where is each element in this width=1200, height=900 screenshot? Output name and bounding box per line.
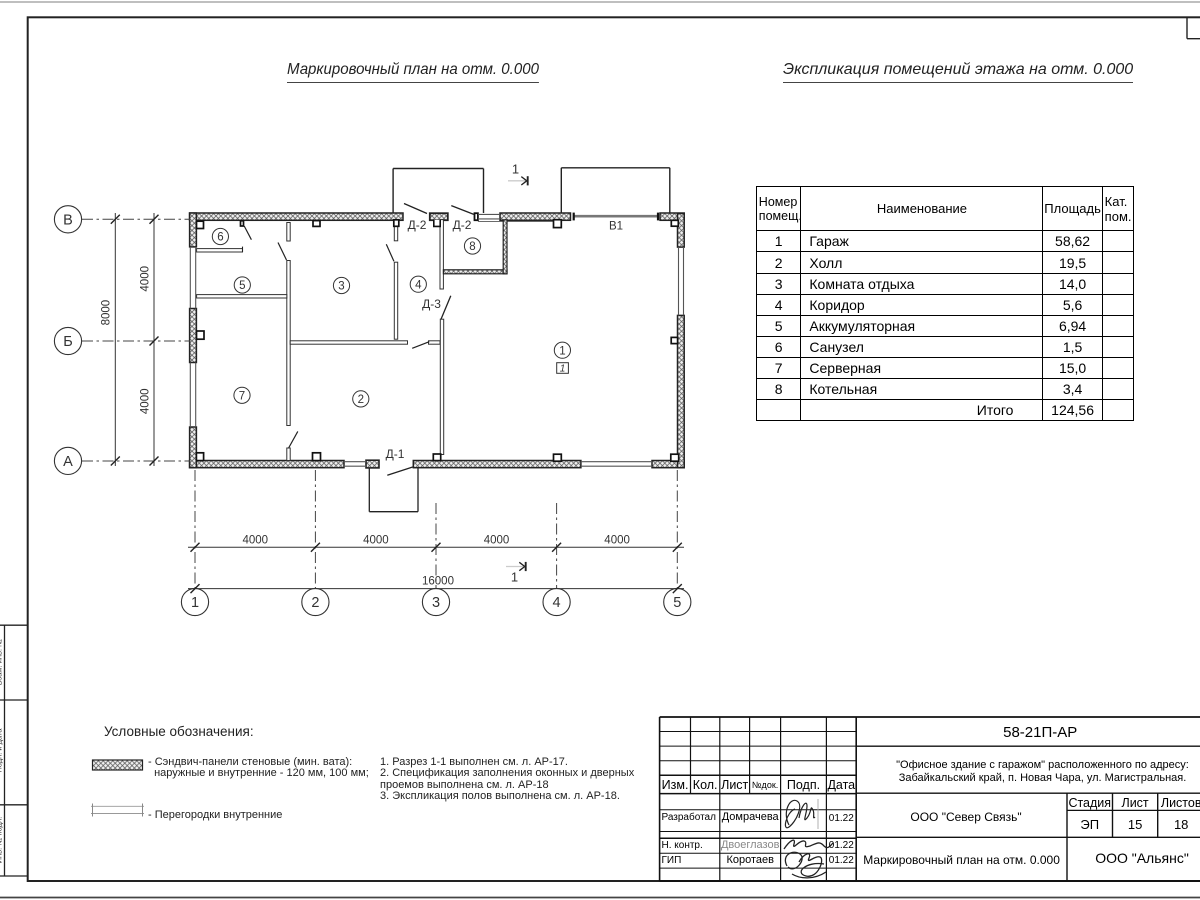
svg-text:2: 2 <box>358 394 364 406</box>
svg-text:В: В <box>63 212 73 228</box>
svg-text:1: 1 <box>511 570 518 585</box>
svg-text:8: 8 <box>469 241 475 253</box>
svg-text:3: 3 <box>338 281 344 293</box>
svg-text:1: 1 <box>191 595 199 611</box>
svg-text:Д-3: Д-3 <box>422 297 441 311</box>
svg-text:4: 4 <box>415 279 422 291</box>
svg-text:1: 1 <box>512 162 519 177</box>
svg-text:4000: 4000 <box>140 389 152 415</box>
svg-text:5: 5 <box>673 595 681 611</box>
svg-text:4000: 4000 <box>363 535 389 547</box>
svg-text:6: 6 <box>217 232 223 244</box>
svg-text:Д-1: Д-1 <box>386 447 405 461</box>
svg-text:4000: 4000 <box>604 535 630 547</box>
svg-text:А: А <box>63 454 73 470</box>
svg-text:8000: 8000 <box>101 300 113 326</box>
svg-text:16000: 16000 <box>422 576 454 588</box>
svg-text:1: 1 <box>560 363 566 374</box>
svg-text:4000: 4000 <box>243 535 269 547</box>
svg-text:3: 3 <box>432 595 440 611</box>
svg-text:4000: 4000 <box>140 266 152 292</box>
svg-text:Инв. № подл.: Инв. № подл. <box>0 817 4 864</box>
svg-text:2: 2 <box>311 595 319 611</box>
svg-text:Взам. инв. №: Взам. инв. № <box>0 639 4 685</box>
svg-text:7: 7 <box>239 391 245 403</box>
svg-text:Б: Б <box>63 334 73 350</box>
svg-text:4: 4 <box>553 595 561 611</box>
svg-text:Д-2: Д-2 <box>453 218 472 232</box>
svg-text:Д-2: Д-2 <box>408 218 427 232</box>
svg-text:Подп. и дата: Подп. и дата <box>0 728 4 773</box>
svg-text:5: 5 <box>239 280 245 292</box>
svg-text:4000: 4000 <box>484 535 510 547</box>
svg-text:В1: В1 <box>609 221 623 233</box>
svg-text:1: 1 <box>559 345 565 357</box>
